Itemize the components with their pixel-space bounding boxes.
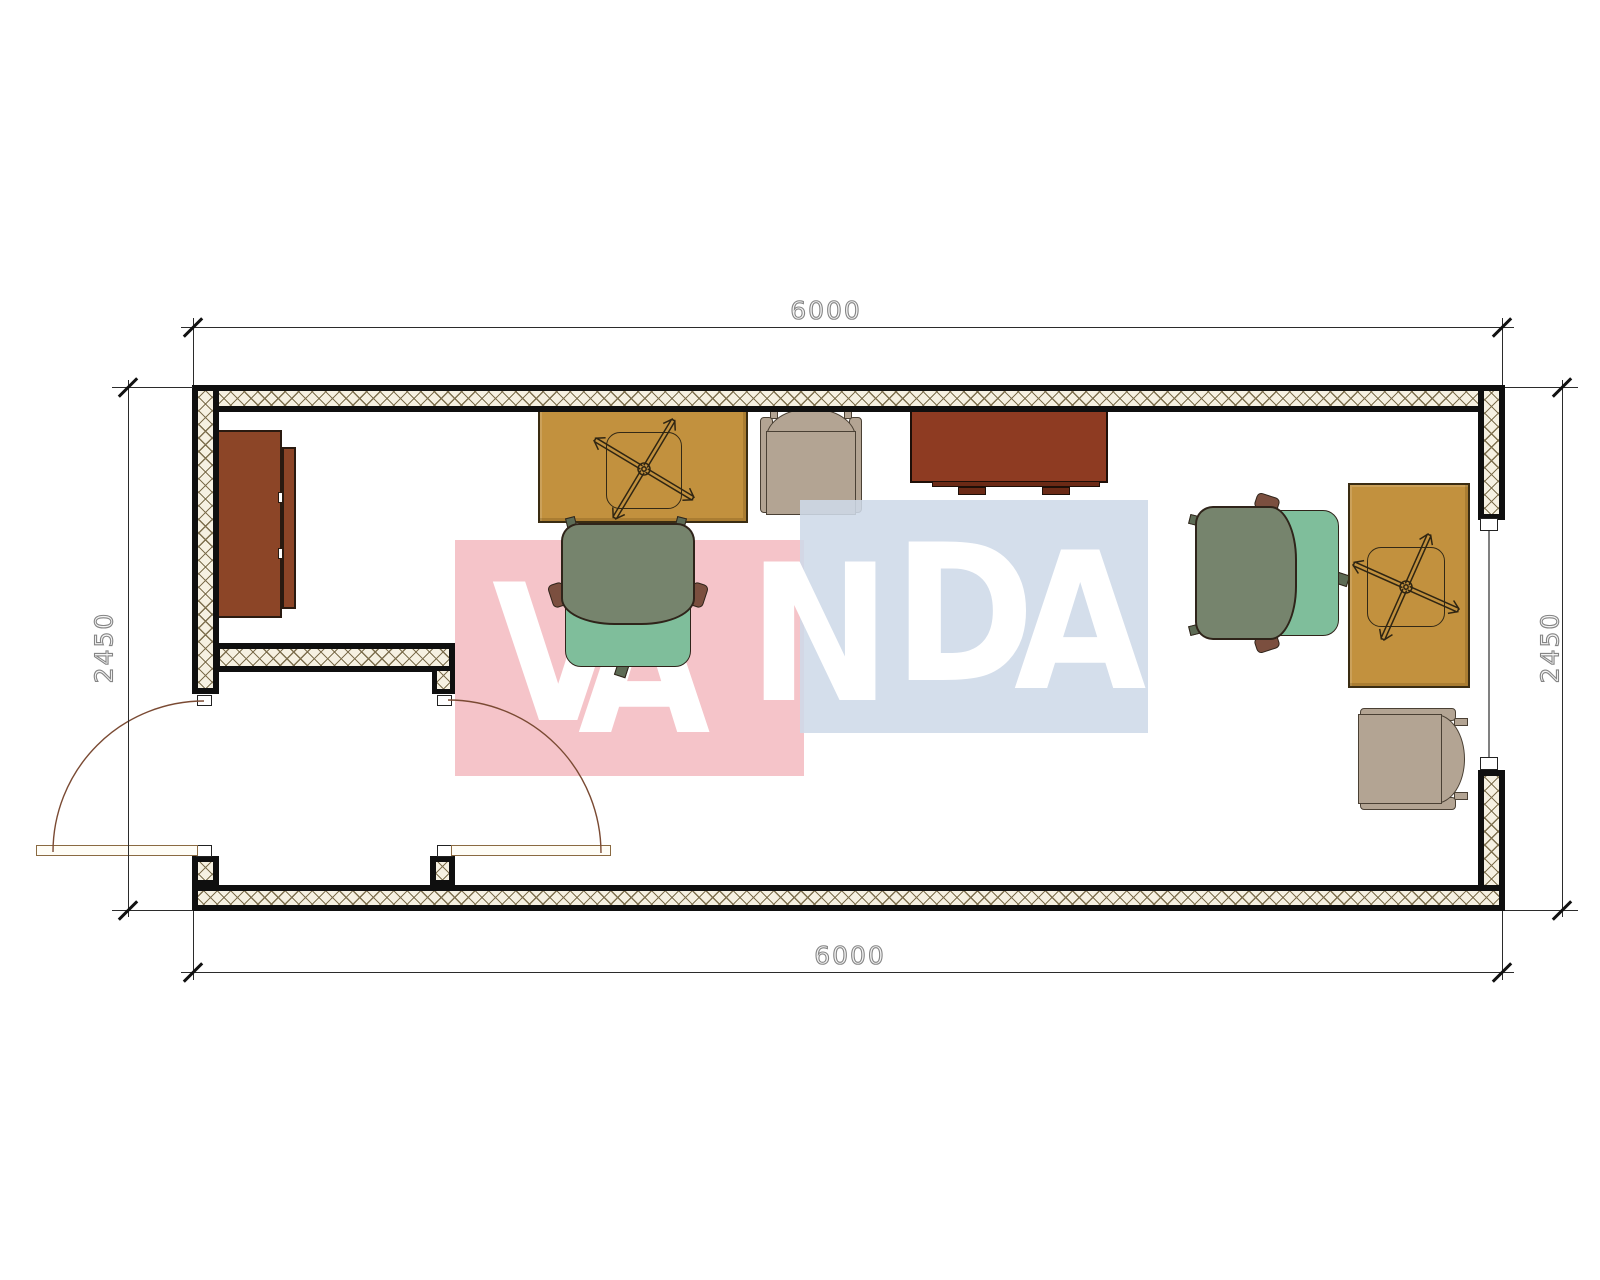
dimension-label-top: 6000 (770, 296, 882, 325)
dimension-line-bottom (181, 972, 1514, 973)
dimension-line-left (128, 380, 129, 917)
dimension-label-bottom: 6000 (794, 941, 906, 970)
floor-plan-canvas: V A N D A (0, 0, 1600, 1280)
dimension-label-left: 2450 (90, 592, 119, 704)
extension-line (1505, 910, 1578, 911)
door-swing-arc-right (448, 700, 601, 853)
extension-line (1505, 387, 1578, 388)
dimension-label-right: 2450 (1536, 592, 1565, 704)
plan-overlay (0, 0, 1600, 1280)
dimension-line-top (181, 327, 1514, 328)
